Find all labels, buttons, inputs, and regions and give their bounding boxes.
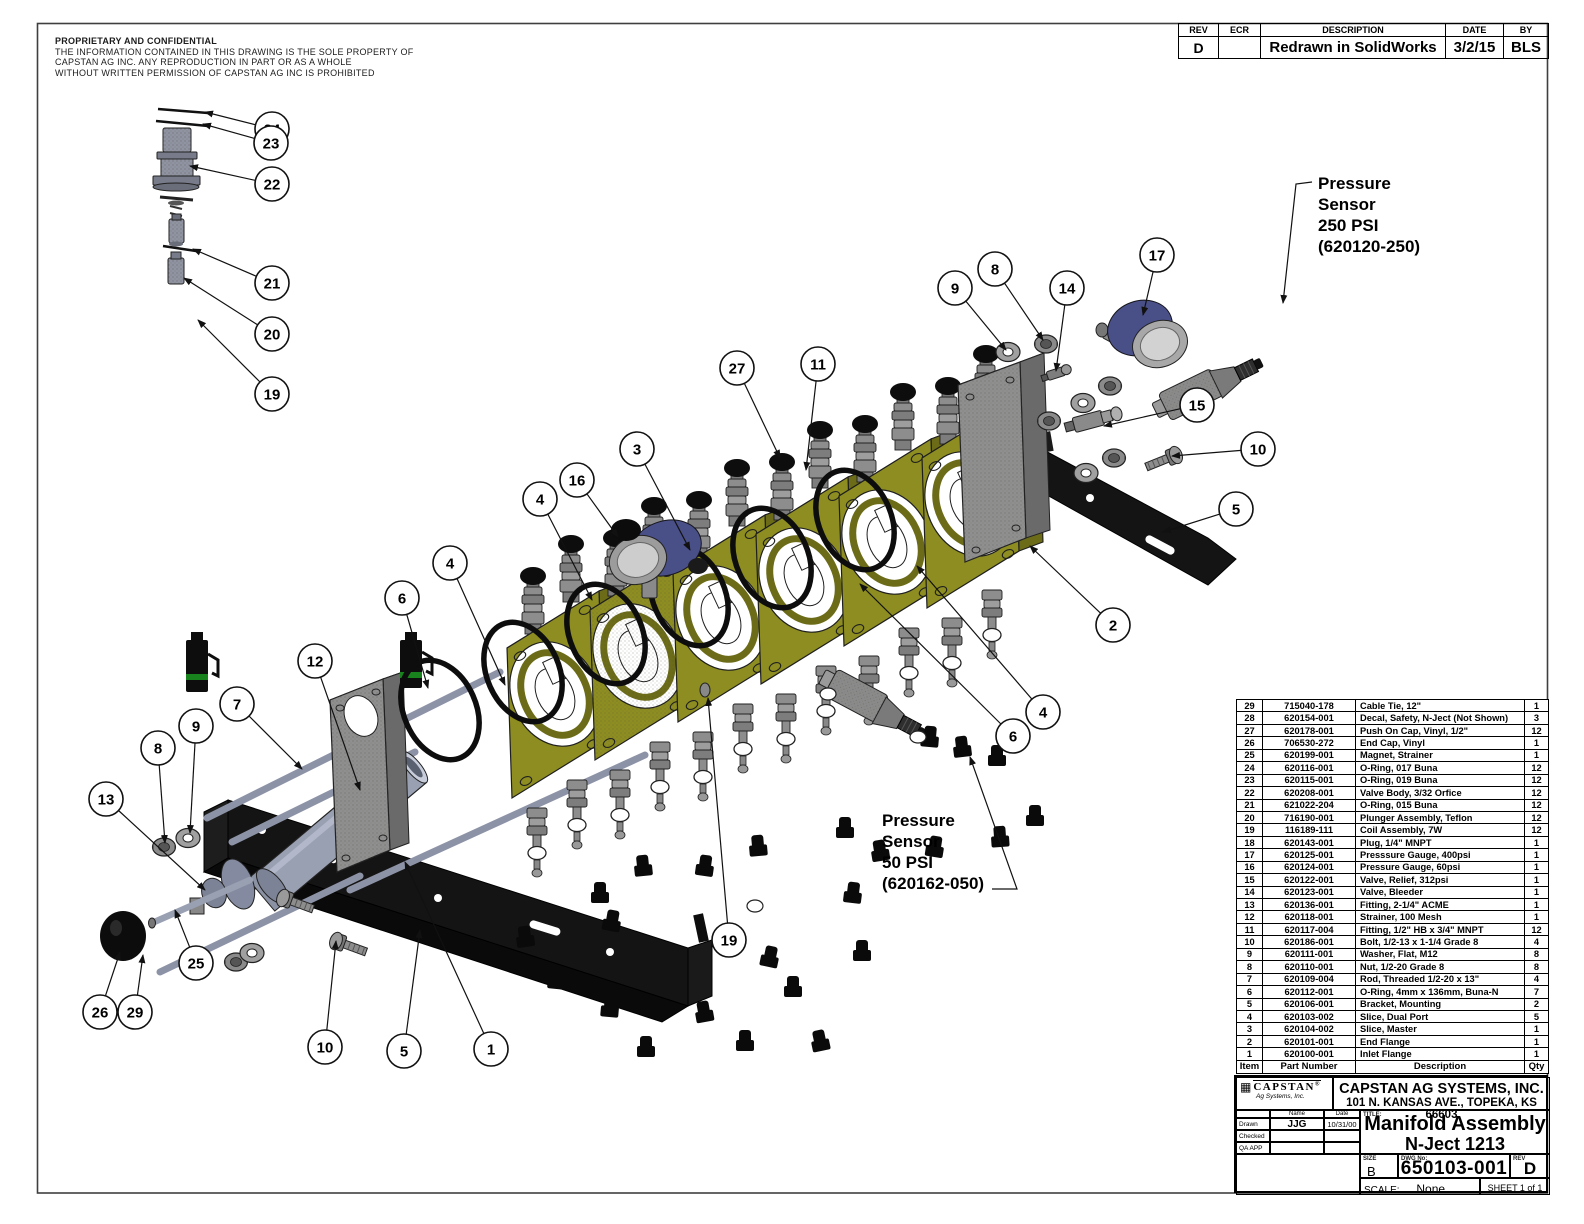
leader-line [966, 301, 1006, 350]
bom-cell: 13 [1237, 899, 1263, 911]
proprietary-line: CAPSTAN AG INC. ANY REPRODUCTION IN PART… [55, 57, 455, 68]
bom-cell: O-Ring, 015 Buna [1356, 799, 1525, 811]
bom-cell: 1 [1237, 1048, 1263, 1060]
bom-cell: End Cap, Vinyl [1356, 737, 1525, 749]
washer [176, 829, 200, 848]
bom-cell: 620186-001 [1263, 936, 1356, 948]
bom-row: 16620124-001Pressure Gauge, 60psi1 [1237, 861, 1549, 873]
bom-cell: Magnet, Strainer [1356, 749, 1525, 761]
balloon-label: 1 [487, 1042, 495, 1059]
qty-col-header: Qty [1525, 1060, 1549, 1073]
bom-cell: 12 [1237, 911, 1263, 923]
bom-cell: 620109-004 [1263, 973, 1356, 985]
bom-row: 10620186-001Bolt, 1/2-13 x 1-1/4 Grade 8… [1237, 936, 1549, 948]
bom-row: 6620112-001O-Ring, 4mm x 136mm, Buna-N7 [1237, 986, 1549, 998]
bom-cell: 21 [1237, 799, 1263, 811]
bom-cell: 12 [1525, 824, 1549, 836]
bom-cell: 620143-001 [1263, 836, 1356, 848]
bom-cell: 620125-001 [1263, 849, 1356, 861]
empty-cell [1236, 1154, 1360, 1195]
bom-cell: 14 [1237, 886, 1263, 898]
scale-value: None [1416, 1182, 1445, 1196]
bom-cell: 620110-001 [1263, 961, 1356, 973]
bom-cell: 1 [1525, 899, 1549, 911]
leader-line [159, 765, 165, 843]
bom-cell: 19 [1237, 824, 1263, 836]
bom-row: 17620125-001Presssure Gauge, 400psi1 [1237, 849, 1549, 861]
leader-line [1005, 283, 1044, 340]
bom-cell: 7 [1525, 986, 1549, 998]
annotation-line: Sensor [1318, 194, 1420, 215]
bom-cell: 5 [1237, 998, 1263, 1010]
revision-row: D Redrawn in SolidWorks 3/2/15 BLS [1179, 37, 1549, 59]
bom-row: 4620103-002Slice, Dual Port5 [1237, 1010, 1549, 1022]
bolt [327, 930, 369, 960]
leader-line [1056, 305, 1065, 371]
bom-cell: 10 [1237, 936, 1263, 948]
balloon-label: 25 [188, 956, 205, 973]
bom-row: 3620104-002Slice, Master1 [1237, 1023, 1549, 1035]
size-value: B [1367, 1164, 1397, 1179]
company-name: CAPSTAN AG SYSTEMS, INC. [1334, 1081, 1549, 1097]
bom-cell: 620100-001 [1263, 1048, 1356, 1060]
leader-line [457, 579, 505, 686]
bom-cell: Slice, Dual Port [1356, 1010, 1525, 1022]
bom-cell: Coil Assembly, 7W [1356, 824, 1525, 836]
coil-assembly [186, 632, 218, 692]
manifold-slices [386, 345, 1043, 877]
rev-label: REV [1513, 1156, 1525, 1162]
bom-row: 25620199-001Magnet, Strainer1 [1237, 749, 1549, 761]
balloon-label: 22 [264, 177, 281, 194]
bom-cell: 620116-001 [1263, 762, 1356, 774]
balloon-label: 6 [398, 591, 406, 608]
bom-row: 22620208-001Valve Body, 3/32 Orfice12 [1237, 787, 1549, 799]
bom-cell: 1 [1525, 849, 1549, 861]
bom-cell: 27 [1237, 724, 1263, 736]
annotation-2: PressureSensor50 PSI(620162-050) [882, 810, 984, 894]
bom-cell: 706530-272 [1263, 737, 1356, 749]
leader-line [744, 383, 780, 458]
bom-cell: 116189-111 [1263, 824, 1356, 836]
bom-body: 29715040-178Cable Tie, 12"128620154-001D… [1237, 700, 1549, 1061]
bom-row: 7620109-004Rod, Threaded 1/2-20 x 13"4 [1237, 973, 1549, 985]
bom-row: 26706530-272End Cap, Vinyl1 [1237, 737, 1549, 749]
bom-cell: 25 [1237, 749, 1263, 761]
balloon-label: 4 [1039, 705, 1048, 722]
bom-cell: Push On Cap, Vinyl, 1/2" [1356, 724, 1525, 736]
bom-cell: 1 [1525, 874, 1549, 886]
balloon-label: 8 [154, 741, 162, 758]
bom-cell: 11 [1237, 923, 1263, 935]
bom-cell: Decal, Safety, N-Ject (Not Shown) [1356, 712, 1525, 724]
bom-cell: 8 [1525, 961, 1549, 973]
balloon-label: 14 [1059, 281, 1076, 298]
leader-line [327, 941, 336, 1030]
bom-cell: 620118-001 [1263, 911, 1356, 923]
bom-cell: 620122-001 [1263, 874, 1356, 886]
balloon-label: 13 [98, 792, 115, 809]
balloon-label: 9 [192, 719, 200, 736]
bom-cell: 28 [1237, 712, 1263, 724]
balloon-label: 9 [951, 281, 959, 298]
bom-cell: 15 [1237, 874, 1263, 886]
bom-cell: 3 [1525, 712, 1549, 724]
bom-cell: Nut, 1/2-20 Grade 8 [1356, 961, 1525, 973]
balloon-label: 20 [264, 327, 281, 344]
bom-cell: Presssure Gauge, 400psi [1356, 849, 1525, 861]
bolt [1143, 444, 1185, 475]
balloon-label: 10 [317, 1040, 334, 1057]
bom-cell: 620111-001 [1263, 948, 1356, 960]
vinyl-end-cap [100, 911, 146, 961]
balloon-label: 5 [1232, 502, 1240, 519]
bom-cell: Valve, Relief, 312psi [1356, 874, 1525, 886]
bom-cell: 22 [1237, 787, 1263, 799]
leader-line [587, 494, 618, 537]
title-line-1: Manifold Assembly [1361, 1114, 1549, 1135]
bom-cell: 12 [1525, 799, 1549, 811]
bom-cell: Slice, Master [1356, 1023, 1525, 1035]
bom-cell: Fitting, 1/2" HB x 3/4" MNPT [1356, 923, 1525, 935]
title-block: ▦ CAPSTAN® Ag Systems, Inc. CAPSTAN AG S… [1234, 1075, 1548, 1193]
bom-cell: 29 [1237, 700, 1263, 712]
bom-cell: 12 [1525, 923, 1549, 935]
bom-cell: 2 [1525, 998, 1549, 1010]
checked-label: Checked [1236, 1130, 1270, 1142]
annotation-1: PressureSensor250 PSI(620120-250) [1318, 173, 1420, 257]
balloon-label: 5 [400, 1044, 408, 1061]
drawn-date: 10/31/00 [1324, 1118, 1360, 1130]
revision-table: REV ECR DESCRIPTION DATE BY D Redrawn in… [1178, 23, 1549, 59]
bom-cell: 1 [1525, 737, 1549, 749]
bom-cell: 620104-002 [1263, 1023, 1356, 1035]
leader-line [205, 112, 256, 125]
leader-line [119, 811, 206, 891]
registered-mark: ® [1315, 1081, 1321, 1087]
bom-row: 1620100-001Inlet Flange1 [1237, 1048, 1549, 1060]
bom-cell: 4 [1237, 1010, 1263, 1022]
bom-cell: 12 [1525, 724, 1549, 736]
proprietary-title: PROPRIETARY AND CONFIDENTIAL [55, 36, 455, 47]
scale-cell: SCALE: None [1360, 1178, 1480, 1195]
drawing-title: TITLE: Manifold Assembly N-Ject 1213 [1360, 1110, 1550, 1154]
bom-cell: End Flange [1356, 1035, 1525, 1047]
balloon-label: 19 [721, 933, 738, 950]
qa-name [1270, 1142, 1324, 1154]
bom-row: 5620106-001Bracket, Mounting2 [1237, 998, 1549, 1010]
bom-cell: 620101-001 [1263, 1035, 1356, 1047]
leader-line [190, 743, 195, 833]
annotation-line: (620120-250) [1318, 236, 1420, 257]
annotation-line: (620162-050) [882, 873, 984, 894]
balloon-label: 29 [127, 1005, 144, 1022]
title-line-2: N-Ject 1213 [1361, 1135, 1549, 1154]
bom-row: 18620143-001Plug, 1/4" MNPT1 [1237, 836, 1549, 848]
bom-cell: 12 [1525, 787, 1549, 799]
company-block: CAPSTAN AG SYSTEMS, INC. 101 N. KANSAS A… [1333, 1077, 1550, 1110]
annotation-line: Pressure [1318, 173, 1420, 194]
leader-line [249, 716, 302, 769]
sheet-cell: SHEET 1 of 1 [1480, 1178, 1550, 1195]
bom-cell: 620178-001 [1263, 724, 1356, 736]
revision-description: Redrawn in SolidWorks [1261, 37, 1446, 59]
bom-cell: 26 [1237, 737, 1263, 749]
nut [153, 838, 176, 856]
bom-cell: 620112-001 [1263, 986, 1356, 998]
leader-line [137, 955, 143, 995]
leader-line [198, 320, 260, 382]
scale-label: SCALE: [1364, 1185, 1400, 1196]
bom-cell: Bracket, Mounting [1356, 998, 1525, 1010]
date-col-header: Date [1324, 1110, 1360, 1118]
bom-cell: 12 [1525, 762, 1549, 774]
annotation-leader [1283, 182, 1312, 303]
bom-cell: O-Ring, 017 Buna [1356, 762, 1525, 774]
bom-cell: 3 [1237, 1023, 1263, 1035]
balloon-label: 26 [92, 1005, 109, 1022]
bom-cell: 23 [1237, 774, 1263, 786]
balloon-label: 16 [569, 473, 586, 490]
leader-line [203, 124, 255, 138]
checked-name [1270, 1130, 1324, 1142]
bom-cell: 4 [1525, 973, 1549, 985]
bom-cell: 620154-001 [1263, 712, 1356, 724]
by-col-header: BY [1504, 24, 1549, 37]
leader-line [105, 952, 120, 996]
plug [700, 683, 710, 697]
bom-cell: 620117-004 [1263, 923, 1356, 935]
bom-cell: 620124-001 [1263, 861, 1356, 873]
bom-cell: Plug, 1/4" MNPT [1356, 836, 1525, 848]
bom-row: 29715040-178Cable Tie, 12"1 [1237, 700, 1549, 712]
revision-date: 3/2/15 [1446, 37, 1504, 59]
logo-subtext: Ag Systems, Inc. [1256, 1093, 1332, 1100]
bom-row: 23620115-001O-Ring, 019 Buna12 [1237, 774, 1549, 786]
bom-cell: 1 [1525, 911, 1549, 923]
annotation-line: Pressure [882, 810, 984, 831]
leader-line [1030, 546, 1101, 613]
bom-cell: Inlet Flange [1356, 1048, 1525, 1060]
leader-line [406, 930, 420, 1034]
end-flange [958, 353, 1050, 562]
leader-line [175, 910, 190, 947]
leader-line [184, 278, 258, 325]
bom-row: 21621022-204O-Ring, 015 Buna12 [1237, 799, 1549, 811]
bom-cell: 6 [1237, 986, 1263, 998]
title-label: TITLE: [1363, 1112, 1382, 1118]
bom-row: 27620178-001Push On Cap, Vinyl, 1/2"12 [1237, 724, 1549, 736]
bom-row: 13620136-001Fitting, 2-1/4" ACME1 [1237, 899, 1549, 911]
bom-cell: Valve Body, 3/32 Orfice [1356, 787, 1525, 799]
size-label: SIZE [1363, 1156, 1376, 1162]
drawn-label: Drawn [1236, 1118, 1270, 1130]
bom-cell: 16 [1237, 861, 1263, 873]
bom-cell: 1 [1525, 861, 1549, 873]
bom-header-row: Item Part Number Description Qty [1237, 1060, 1549, 1073]
bom-row: 11620117-004Fitting, 1/2" HB x 3/4" MNPT… [1237, 923, 1549, 935]
bom-cell: 620208-001 [1263, 787, 1356, 799]
bom-cell: 8 [1525, 948, 1549, 960]
dwg-label: DWG No: [1401, 1156, 1427, 1162]
capstan-logo-icon: ▦ [1240, 1081, 1251, 1093]
bom-cell: 620199-001 [1263, 749, 1356, 761]
bom-cell: 2 [1237, 1035, 1263, 1047]
bom-cell: O-Ring, 019 Buna [1356, 774, 1525, 786]
bom-cell: 620136-001 [1263, 899, 1356, 911]
mounting-bracket-right [1038, 431, 1236, 585]
ecr-col-header: ECR [1219, 24, 1261, 37]
bom-cell: 18 [1237, 836, 1263, 848]
description-col-header: DESCRIPTION [1261, 24, 1446, 37]
bom-cell: 1 [1525, 1048, 1549, 1060]
qa-label: QA APP [1236, 1142, 1270, 1154]
bom-cell: 1 [1525, 1023, 1549, 1035]
balloon-label: 11 [810, 357, 826, 374]
rev-col-header: REV [1179, 24, 1219, 37]
part-number-col-header: Part Number [1263, 1060, 1356, 1073]
bom-cell: Washer, Flat, M12 [1356, 948, 1525, 960]
balloon-label: 10 [1250, 442, 1267, 459]
dwg-number-cell: DWG No: 650103-001 [1398, 1154, 1510, 1178]
bom-cell: 1 [1525, 749, 1549, 761]
balloon-label: 8 [991, 262, 999, 279]
bom-cell: 7 [1237, 973, 1263, 985]
leader-line [193, 249, 256, 276]
revision-by: BLS [1504, 37, 1549, 59]
bom-cell: Plunger Assembly, Teflon [1356, 811, 1525, 823]
bom-cell: 620115-001 [1263, 774, 1356, 786]
leader-line [917, 566, 1032, 699]
bom-cell: 1 [1525, 700, 1549, 712]
bom-cell: 621022-204 [1263, 799, 1356, 811]
description-col-header: Description [1356, 1060, 1525, 1073]
balloon-label: 7 [233, 697, 241, 714]
balloon-label: 2 [1109, 618, 1117, 635]
proprietary-line: WITHOUT WRITTEN PERMISSION OF CAPSTAN AG… [55, 68, 455, 79]
balloon-label: 19 [264, 387, 281, 404]
bom-cell: Rod, Threaded 1/2-20 x 13" [1356, 973, 1525, 985]
rev-cell: REV D [1510, 1154, 1550, 1178]
bom-row: 14620123-001Valve, Bleeder1 [1237, 886, 1549, 898]
bom-row: 9620111-001Washer, Flat, M128 [1237, 948, 1549, 960]
bom-row: 24620116-001O-Ring, 017 Buna12 [1237, 762, 1549, 774]
valve-cartridge-detail [153, 109, 208, 284]
bom-cell: Pressure Gauge, 60psi [1356, 861, 1525, 873]
grid-blank [1236, 1110, 1270, 1118]
balloon-label: 15 [1189, 398, 1206, 415]
name-col-header: Name [1270, 1110, 1324, 1118]
bom-cell: 716190-001 [1263, 811, 1356, 823]
relief-valve [1063, 405, 1123, 435]
bom-cell: 620103-002 [1263, 1010, 1356, 1022]
annotation-line: Sensor [882, 831, 984, 852]
balloon-label: 21 [264, 276, 281, 293]
rev-value: D [1511, 1159, 1549, 1179]
capstan-logo: ▦ CAPSTAN® Ag Systems, Inc. [1236, 1077, 1333, 1110]
item-col-header: Item [1237, 1060, 1263, 1073]
balloon-label: 3 [633, 442, 641, 459]
bom-cell: 620106-001 [1263, 998, 1356, 1010]
bom-cell: 1 [1525, 836, 1549, 848]
ecr-value [1219, 37, 1261, 59]
bom-cell: Valve, Bleeder [1356, 886, 1525, 898]
drawn-name: JJG [1270, 1118, 1324, 1130]
bom-cell: Fitting, 2-1/4" ACME [1356, 899, 1525, 911]
drawing-sheet: 2423222120191279813262925105164416327119… [0, 0, 1584, 1224]
balloon-label: 12 [307, 654, 324, 671]
balloon-label: 27 [729, 361, 746, 378]
inlet-flange [330, 672, 409, 872]
bom-cell: 1 [1525, 886, 1549, 898]
bom-row: 2620101-001End Flange1 [1237, 1035, 1549, 1047]
date-col-header: DATE [1446, 24, 1504, 37]
bom-cell: 17 [1237, 849, 1263, 861]
bom-cell: 12 [1525, 811, 1549, 823]
bom-row: 28620154-001Decal, Safety, N-Ject (Not S… [1237, 712, 1549, 724]
bom-cell: Bolt, 1/2-13 x 1-1/4 Grade 8 [1356, 936, 1525, 948]
bom-cell: 9 [1237, 948, 1263, 960]
size-cell: SIZE B [1360, 1154, 1398, 1178]
balloon-label: 23 [263, 136, 280, 153]
bom-cell: 12 [1525, 774, 1549, 786]
bom-row: 20716190-001Plunger Assembly, Teflon12 [1237, 811, 1549, 823]
bom-cell: Cable Tie, 12" [1356, 700, 1525, 712]
bom-row: 12620118-001Strainer, 100 Mesh1 [1237, 911, 1549, 923]
bom-cell: 20 [1237, 811, 1263, 823]
balloon-label: 6 [1009, 729, 1017, 746]
checked-date [1324, 1130, 1360, 1142]
bom-row: 19116189-111Coil Assembly, 7W12 [1237, 824, 1549, 836]
balloon-label: 4 [446, 556, 455, 573]
bom-cell: 715040-178 [1263, 700, 1356, 712]
bom-table: 29715040-178Cable Tie, 12"128620154-001D… [1236, 699, 1549, 1074]
annotation-line: 250 PSI [1318, 215, 1420, 236]
bom-cell: 24 [1237, 762, 1263, 774]
qa-date [1324, 1142, 1360, 1154]
leader-line [1172, 450, 1241, 456]
bom-cell: 4 [1525, 936, 1549, 948]
bom-cell: 1 [1525, 1035, 1549, 1047]
leader-line [708, 698, 728, 923]
annotation-line: 50 PSI [882, 852, 984, 873]
bom-cell: O-Ring, 4mm x 136mm, Buna-N [1356, 986, 1525, 998]
balloon-label: 4 [536, 492, 545, 509]
proprietary-note: PROPRIETARY AND CONFIDENTIAL THE INFORMA… [55, 36, 455, 78]
bom-row: 15620122-001Valve, Relief, 312psi1 [1237, 874, 1549, 886]
washer [240, 944, 264, 963]
bom-cell: 8 [1237, 961, 1263, 973]
balloon-label: 17 [1149, 248, 1166, 265]
bom-cell: 5 [1525, 1010, 1549, 1022]
logo-text: CAPSTAN [1253, 1081, 1315, 1093]
rev-value: D [1179, 37, 1219, 59]
proprietary-line: THE INFORMATION CONTAINED IN THIS DRAWIN… [55, 47, 455, 58]
bom-row: 8620110-001Nut, 1/2-20 Grade 88 [1237, 961, 1549, 973]
bom-cell: Strainer, 100 Mesh [1356, 911, 1525, 923]
bom-cell: 620123-001 [1263, 886, 1356, 898]
